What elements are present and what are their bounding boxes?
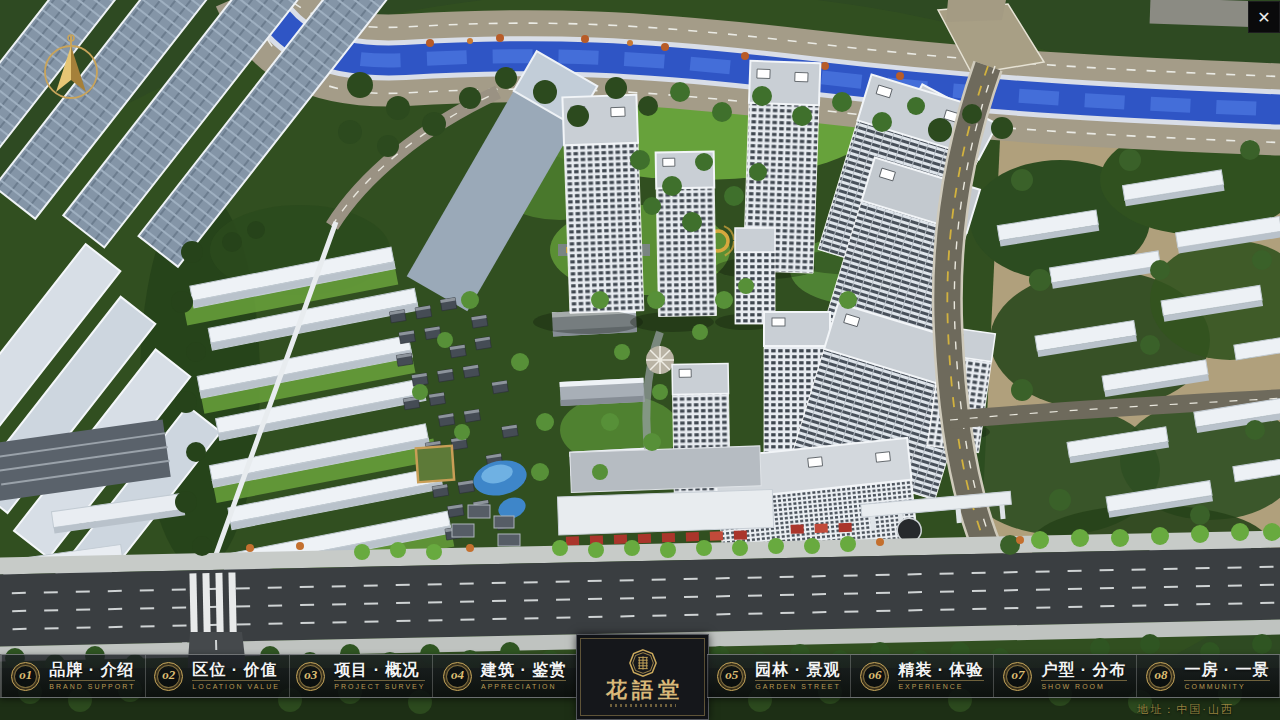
nav-label-en: LOCATION VALUE (192, 680, 280, 690)
nav-label-zh: 建筑 · 鉴赏 (481, 662, 566, 679)
nav-label-en: EXPERIENCE (898, 680, 983, 690)
nav-item-garden[interactable]: o5 园林 · 景观 GARDEN STREET (707, 655, 851, 697)
nav-badge-02: o2 (154, 662, 183, 691)
nav-label-zh: 项目 · 概况 (334, 662, 419, 679)
brand-name: 花語堂 (601, 680, 684, 701)
nav-label-en: COMMUNITY (1184, 680, 1269, 690)
nav-badge-08: o8 (1146, 662, 1175, 691)
nav-item-floorplans[interactable]: o7 户型 · 分布 SHOW ROOM (994, 655, 1137, 697)
nav-label-zh: 一房 · 一景 (1184, 662, 1269, 679)
nav-strip-right: o5 园林 · 景观 GARDEN STREET o6 精装 · 体验 EXPE… (707, 654, 1280, 698)
brand-logo-panel[interactable]: 花語堂 (576, 634, 709, 720)
brand-seal-icon (628, 648, 658, 678)
close-icon: ✕ (1257, 8, 1270, 27)
nav-badge-03: o3 (296, 662, 325, 691)
close-button[interactable]: ✕ (1249, 2, 1279, 32)
nav-item-views[interactable]: o8 一房 · 一景 COMMUNITY (1137, 655, 1280, 697)
nav-label-en: GARDEN STREET (755, 680, 841, 690)
nav-label-en: APPRECIATION (481, 680, 566, 690)
nav-label-en: PROJECT SURVEY (334, 680, 425, 690)
nav-item-interior[interactable]: o6 精装 · 体验 EXPERIENCE (851, 655, 994, 697)
address-label: 地址：中国·山西 (1137, 702, 1234, 717)
nav-badge-05: o5 (717, 662, 746, 691)
nav-label-zh: 户型 · 分布 (1041, 662, 1126, 679)
nav-item-brand[interactable]: o1 品牌 · 介绍 BRAND SUPPORT (1, 655, 146, 697)
nav-badge-04: o4 (443, 662, 472, 691)
garden-plaza (646, 346, 674, 374)
nav-badge-06: o6 (860, 662, 889, 691)
nav-item-project[interactable]: o3 项目 · 概况 PROJECT SURVEY (290, 655, 434, 697)
nav-label-en: BRAND SUPPORT (49, 680, 135, 690)
nav-label-en: SHOW ROOM (1041, 680, 1126, 690)
nav-label-zh: 品牌 · 介绍 (49, 662, 134, 679)
nav-item-architecture[interactable]: o4 建筑 · 鉴赏 APPRECIATION (433, 655, 577, 697)
nav-label-zh: 精装 · 体验 (898, 662, 983, 679)
masterplan-render (0, 0, 1280, 720)
brand-tagline (610, 704, 676, 707)
nav-item-location[interactable]: o2 区位 · 价值 LOCATION VALUE (146, 655, 290, 697)
nav-label-zh: 园林 · 景观 (755, 662, 840, 679)
nav-label-zh: 区位 · 价值 (192, 662, 277, 679)
presentation-screen: ✕ o1 品牌 · 介绍 BRAND SUPPORT o2 区位 · 价值 LO… (0, 0, 1280, 720)
nav-strip-left: o1 品牌 · 介绍 BRAND SUPPORT o2 区位 · 价值 LOCA… (0, 654, 577, 698)
nav-badge-01: o1 (11, 662, 40, 691)
nav-badge-07: o7 (1003, 662, 1032, 691)
